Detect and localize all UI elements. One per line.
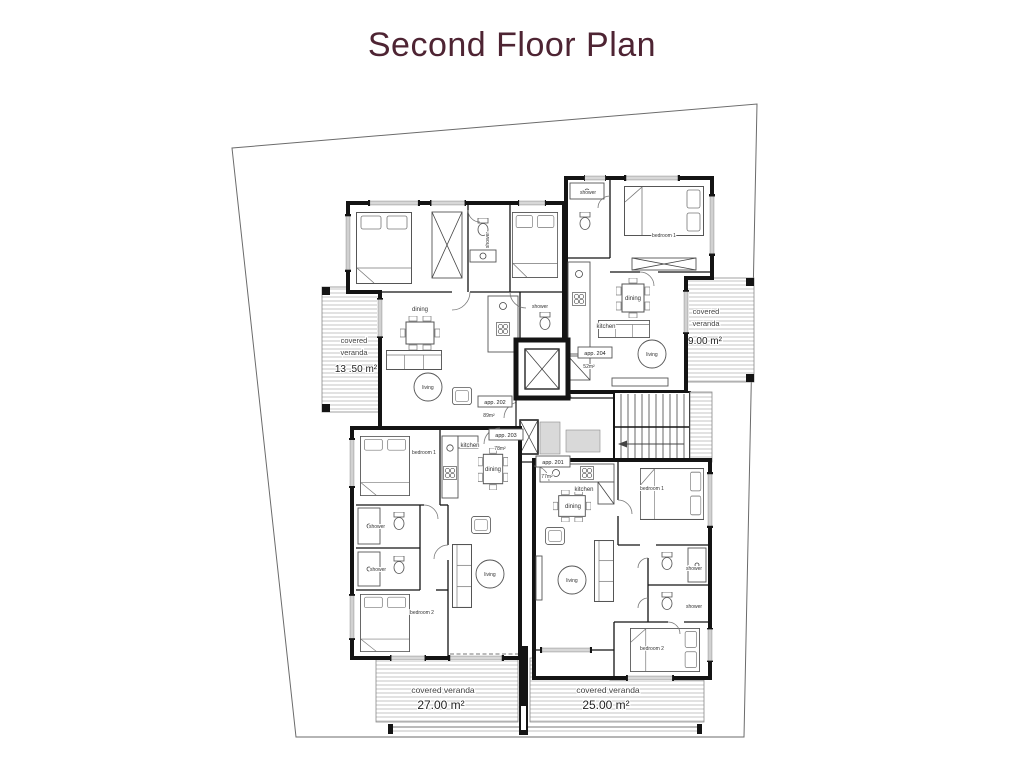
room-label-living: living: [646, 352, 658, 358]
window-icon: [390, 655, 426, 661]
veranda-bottom-right-name: covered veranda: [576, 685, 640, 695]
armchair-icon: [546, 527, 565, 544]
veranda-right-area: 9.00 m²: [688, 336, 723, 347]
apartment-area: 77m²: [541, 474, 553, 480]
veranda-bottom-left-name: covered veranda: [411, 685, 475, 695]
toilet-icon: [394, 556, 404, 574]
room-label-bedroom2: bedroom 2: [640, 646, 664, 652]
armchair-icon: [452, 387, 471, 404]
room-label-living: living: [422, 385, 434, 391]
tv-cabinet-icon: [536, 556, 542, 600]
room-label-shower: shower: [686, 566, 702, 572]
room-label-bedroom2: bedroom 2: [410, 610, 434, 616]
veranda-railing: [388, 724, 702, 734]
shower-tray-icon: [688, 548, 706, 582]
room-label-shower: shower: [485, 232, 491, 248]
room-label-dining: dining: [485, 467, 501, 473]
stove-icon: [573, 293, 586, 306]
apartment-area: 89m²: [483, 413, 495, 419]
window-icon: [683, 290, 689, 334]
bed-icon: [625, 187, 704, 236]
veranda-left-area: 13 .50 m²: [335, 364, 378, 375]
veranda-right-word1: covered: [693, 307, 720, 316]
veranda-left-word2: veranda: [340, 348, 368, 357]
window-icon: [540, 647, 592, 653]
room-label-kitchen: kitchen: [460, 443, 479, 449]
window-icon: [368, 200, 420, 206]
stove-icon: [581, 467, 594, 480]
apartment-tag: app. 201: [542, 460, 563, 466]
room-label-dining: dining: [412, 307, 428, 313]
hall-shaded: [566, 430, 600, 452]
armchair-icon: [472, 516, 491, 533]
toilet-icon: [662, 552, 672, 570]
window-icon: [448, 655, 504, 661]
room-label-living: living: [566, 578, 578, 584]
bed-icon: [360, 436, 409, 495]
window-icon: [377, 298, 383, 338]
veranda-right-word2: veranda: [692, 319, 720, 328]
room-label-shower: shower: [686, 604, 702, 610]
apartment-tag: app. 203: [495, 433, 516, 439]
room-label-shower: shower: [532, 304, 548, 310]
window-icon: [626, 675, 674, 681]
sofa-icon: [595, 541, 614, 602]
bed-icon: [512, 212, 557, 277]
sofa-icon: [386, 351, 441, 370]
kitchen-counter-icon: [568, 262, 590, 354]
room-label-dining: dining: [565, 504, 581, 510]
shaft-shaded: [540, 422, 560, 454]
apartment-tag: app. 202: [484, 400, 505, 406]
window-icon: [430, 200, 466, 206]
window-icon: [709, 194, 715, 256]
toilet-icon: [662, 592, 672, 610]
room-label-dining: dining: [625, 296, 641, 302]
veranda-bottom-right-area: 25.00 m²: [582, 698, 629, 712]
sofa-icon: [453, 545, 472, 608]
stair-side-strip: [690, 392, 712, 462]
room-label-kitchen: kitchen: [574, 487, 593, 493]
toilet-icon: [394, 512, 404, 530]
apartment-area: 78m²: [494, 446, 506, 452]
window-icon: [584, 175, 606, 181]
window-icon: [349, 594, 355, 640]
room-label-living: living: [484, 572, 496, 578]
room-label-bedroom1: bedroom 1: [640, 486, 664, 492]
bed-icon: [640, 469, 703, 520]
window-icon: [707, 472, 713, 528]
bed-icon: [357, 213, 412, 284]
room-label-bedroom1: bedroom 1: [652, 233, 676, 239]
window-icon: [624, 175, 680, 181]
stove-icon: [497, 323, 510, 336]
apartment-201: kitchen dining bedroom 1 shower shower l…: [534, 456, 710, 678]
floor-plan-page: Second Floor Plan: [0, 0, 1024, 768]
window-icon: [707, 628, 713, 662]
veranda-divider-slot: [521, 706, 526, 730]
stove-icon: [444, 467, 457, 480]
window-icon: [518, 200, 546, 206]
bed-icon: [360, 594, 409, 651]
sideboard-icon: [612, 378, 668, 386]
room-label-kitchen: kitchen: [596, 324, 615, 330]
veranda-left-word1: covered: [341, 336, 368, 345]
room-label-shower: shower: [369, 524, 385, 530]
room-label-shower: shower: [580, 190, 596, 196]
vanity-icon: [470, 250, 496, 262]
veranda-left: covered veranda 13 .50 m²: [322, 287, 384, 412]
veranda-right: covered veranda 9.00 m²: [684, 278, 754, 382]
floor-plan-svg: covered veranda 13 .50 m² covered verand…: [0, 0, 1024, 768]
veranda-bottom-left-area: 27.00 m²: [417, 698, 464, 712]
window-icon: [349, 438, 355, 488]
room-label-shower: shower: [370, 567, 386, 573]
apartment-tag: app. 204: [584, 351, 605, 357]
veranda-bottom-left: covered veranda 27.00 m²: [376, 652, 518, 722]
room-label-bedroom1: bedroom 1: [412, 450, 436, 456]
window-icon: [345, 214, 351, 272]
apartment-203: bedroom 1 kitchen dining shower shower b…: [352, 428, 523, 658]
stairs: [614, 392, 690, 462]
toilet-icon: [540, 312, 550, 330]
apartment-area: 52m²: [583, 364, 595, 370]
toilet-icon: [580, 212, 590, 230]
